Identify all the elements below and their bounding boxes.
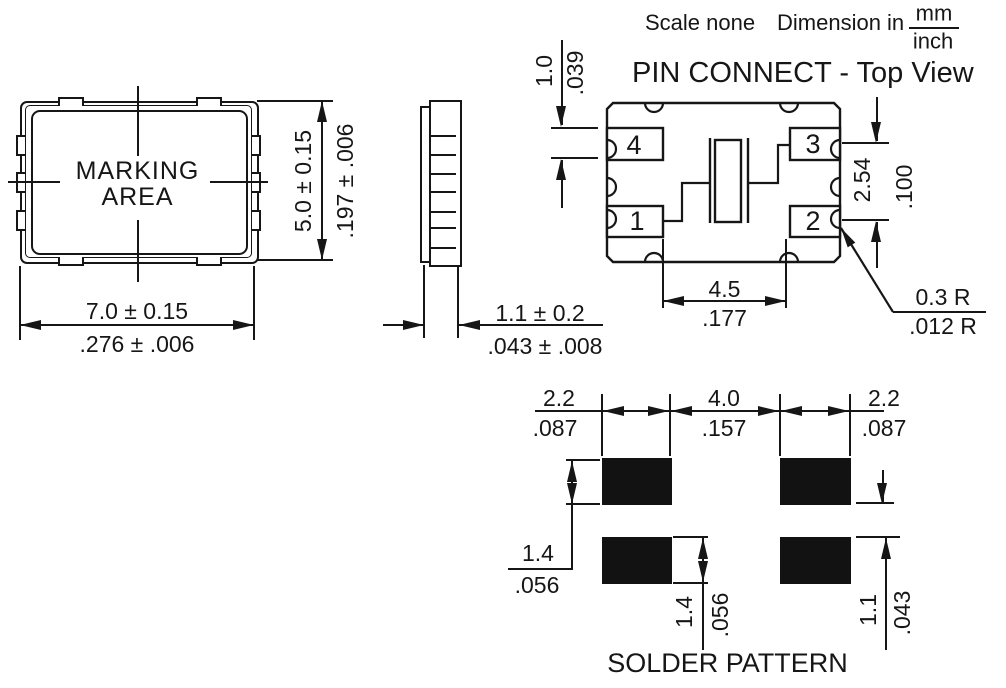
pad-height-lower-inch: .056	[708, 593, 732, 638]
scale-label: Scale none	[645, 11, 755, 34]
solder-pad-bottom-left	[602, 537, 672, 584]
centerline-bottom	[137, 220, 139, 282]
side-seam-line	[431, 135, 456, 137]
pad-height-upper-inch: .056	[503, 573, 571, 597]
crystal-body	[715, 140, 741, 222]
arrowhead-right	[828, 406, 849, 416]
extension-line	[551, 127, 598, 129]
package-height-inch: .197 ± .006	[333, 124, 357, 239]
side-seam-line	[431, 173, 456, 175]
extension-line	[856, 502, 894, 504]
pad-width-left-mm: 2.2	[524, 386, 594, 410]
marking-area-label-line1: MARKING	[31, 158, 244, 184]
dimension-line	[321, 101, 323, 260]
pad-width-right-inch: .087	[850, 416, 918, 440]
arrowhead-right	[403, 320, 424, 330]
arrowhead-down	[317, 239, 327, 260]
dimension-line	[561, 160, 563, 208]
pin3-label: 3	[805, 130, 820, 158]
arrowhead-down	[871, 122, 881, 143]
pad-span-inch: .177	[663, 306, 786, 330]
centerline-top	[137, 86, 139, 156]
pin-pitch-inch: .100	[892, 165, 916, 210]
technical-drawing: Scale none Dimension in mm inch PIN CONN…	[0, 0, 1006, 688]
arrowhead-down	[877, 483, 887, 504]
pad-gap-mm: 4.0	[669, 386, 779, 410]
unit-inch: inch	[913, 29, 953, 52]
pad-height-inch: .039	[563, 51, 587, 96]
side-seam-line	[431, 247, 456, 249]
extension-line	[856, 536, 900, 538]
wire-pin3-to-crystal	[748, 145, 790, 183]
arrowhead-up	[698, 538, 708, 559]
castellation-tab	[58, 97, 84, 106]
extension-line	[779, 394, 781, 456]
leader-arrowhead	[841, 228, 855, 247]
corner-radius-mm: 0.3 R	[900, 285, 986, 309]
pad-gap-inch: .157	[669, 416, 779, 440]
castellation-tab	[252, 210, 261, 231]
arrowhead-down	[567, 483, 577, 504]
castellation-tab	[58, 257, 84, 266]
pin2-label: 2	[805, 207, 820, 235]
dimension-in-label: Dimension in	[777, 11, 904, 34]
solder-pad-top-right	[780, 458, 851, 505]
pad-height-upper-mm: 1.4	[508, 541, 568, 565]
arrowhead-down	[556, 106, 566, 127]
row-gap-inch: .043	[890, 591, 914, 636]
pin-connect-drawing	[600, 96, 850, 268]
pin-connect-title: PIN CONNECT - Top View	[632, 58, 974, 88]
row-gap-mm: 1.1	[856, 594, 880, 626]
dimension-line	[885, 538, 887, 650]
extension-line	[601, 394, 603, 456]
arrowhead-up	[317, 101, 327, 122]
unit-mm: mm	[916, 1, 953, 24]
arrowhead-up	[567, 461, 577, 482]
castellation-tab	[16, 210, 25, 231]
thickness-inch: .043 ± .008	[455, 334, 635, 358]
pad-width-left-inch: .087	[515, 416, 595, 440]
castellation-tab	[196, 257, 222, 266]
package-height-mm: 5.0 ± 0.15	[291, 130, 315, 232]
marking-area-label-line2: AREA	[31, 184, 244, 210]
dimension-line	[20, 324, 254, 326]
solder-pattern-title: SOLDER PATTERN	[595, 649, 860, 677]
side-seam-line	[431, 191, 456, 193]
castellation-tab	[196, 97, 222, 106]
pad-width-right-mm: 2.2	[854, 386, 914, 410]
side-seam-line	[431, 227, 456, 229]
arrowhead-left	[603, 406, 624, 416]
wire-pin1-to-crystal	[663, 183, 710, 221]
arrowhead-right	[648, 406, 669, 416]
pad-height-mm: 1.0	[532, 55, 556, 87]
pin4-label: 4	[626, 131, 641, 159]
pin1-label: 1	[629, 207, 644, 235]
solder-pad-top-left	[602, 458, 672, 505]
pad-height-lower-mm: 1.4	[672, 596, 696, 628]
castellation-tab	[252, 135, 261, 156]
pin-pitch-mm: 2.54	[850, 158, 874, 203]
arrowhead-down	[698, 561, 708, 582]
corner-radius-inch: .012 R	[897, 314, 989, 338]
fraction-bar	[508, 568, 572, 570]
package-width-mm: 7.0 ± 0.15	[20, 299, 254, 323]
thickness-mm: 1.1 ± 0.2	[460, 301, 620, 325]
side-view-body	[429, 100, 462, 267]
pad-span-mm: 4.5	[663, 277, 786, 301]
castellation-tab	[16, 135, 25, 156]
package-width-inch: .276 ± .006	[20, 332, 254, 356]
side-seam-line	[431, 211, 456, 213]
solder-pad-bottom-right	[780, 537, 851, 584]
arrowhead-left	[781, 406, 802, 416]
side-seam-line	[431, 154, 456, 156]
extension-line	[842, 142, 889, 144]
